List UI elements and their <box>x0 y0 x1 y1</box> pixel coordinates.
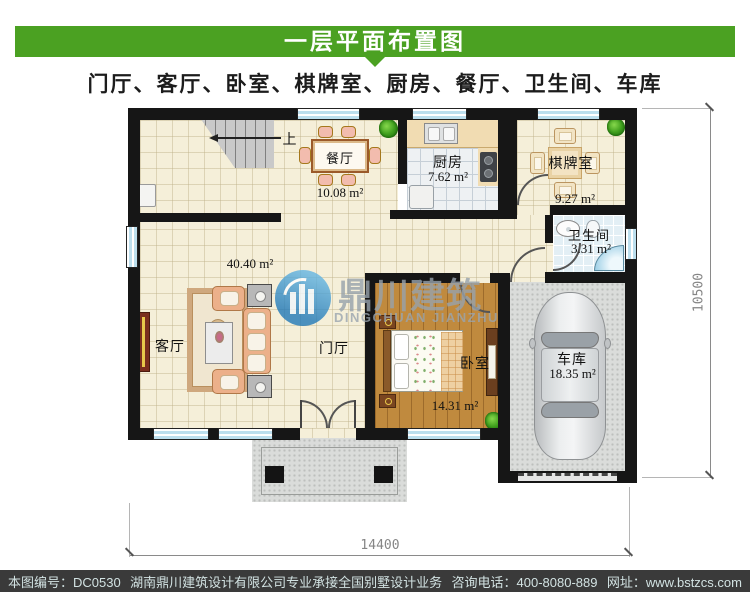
sofa-cushion <box>247 333 266 351</box>
window <box>218 428 273 440</box>
chess-area-value: 9.27 m² <box>545 191 605 207</box>
wall-kitchen-left <box>398 120 407 184</box>
footer-phone: 咨询电话：400-8080-889 <box>452 572 598 591</box>
window <box>153 428 209 440</box>
armchair-cushion <box>220 291 239 306</box>
dim-line-vertical <box>710 109 711 478</box>
wall-bath-bottom <box>545 272 637 283</box>
armchair <box>212 286 245 311</box>
kitchen-area-value: 7.62 m² <box>413 169 483 185</box>
logo-building-bar <box>299 284 305 314</box>
dim-extension-line <box>629 487 630 557</box>
chair-icon <box>299 147 311 164</box>
chair-icon <box>341 126 356 138</box>
dim-width-value: 14400 <box>330 538 430 553</box>
car-rear-window <box>541 402 599 418</box>
lamp-icon <box>255 291 266 302</box>
cabinet-icon <box>138 184 156 207</box>
bed <box>391 330 463 392</box>
stair-arrow-icon <box>209 134 218 142</box>
chair-icon <box>369 147 381 164</box>
dim-extension-line <box>129 503 130 557</box>
burner <box>484 156 493 165</box>
tv-screen-line <box>142 317 145 367</box>
plant-icon <box>607 118 625 136</box>
armchair-cushion <box>220 375 239 390</box>
watermark-en: DINGCHUAN JIANZHU <box>334 310 499 325</box>
wall-bath-left <box>545 215 553 243</box>
dingchuan-logo-icon <box>275 270 331 326</box>
dim-height-value: 10500 <box>692 263 707 323</box>
floor-plan-page: 一层平面布置图 门厅、客厅、卧室、棋牌室、厨房、餐厅、卫生间、车库 <box>0 0 750 592</box>
living-room-label: 客厅 <box>148 336 192 356</box>
fridge-icon <box>409 185 434 209</box>
sink-basin <box>428 127 440 141</box>
pillow <box>394 334 409 360</box>
footer-company: 湖南鼎川建筑设计有限公司专业承接全国别墅设计业务 <box>130 572 442 591</box>
armchair <box>212 369 245 394</box>
garage-area-value: 18.35 m² <box>535 366 610 382</box>
end-table <box>247 284 272 307</box>
wall-dining-living <box>140 213 281 222</box>
pillow <box>394 363 409 389</box>
car-windshield <box>541 332 599 348</box>
living-area-value: 40.40 m² <box>215 256 285 272</box>
banner-pointer-icon <box>365 57 385 67</box>
bed-headboard <box>383 330 391 392</box>
dining-area-value: 10.08 m² <box>305 185 375 201</box>
entry-door-frame <box>290 428 300 440</box>
bedroom-area-value: 14.31 m² <box>420 398 490 414</box>
dim-extension-line <box>642 477 712 478</box>
porch-column <box>374 466 393 483</box>
logo-building-bar <box>308 289 314 314</box>
table-flowers <box>215 331 224 343</box>
window <box>407 428 481 440</box>
window <box>625 228 637 260</box>
coffee-table <box>205 322 233 364</box>
sink-basin <box>443 127 455 141</box>
garage-door-dashed <box>518 473 617 481</box>
wall-kitchen-bottom <box>390 210 508 219</box>
footer-bar: 本图编号：DC0530 湖南鼎川建筑设计有限公司专业承接全国别墅设计业务 咨询电… <box>0 570 750 592</box>
bathroom-area-value: 3.31 m² <box>562 241 620 257</box>
kitchen-sink-icon <box>424 123 458 144</box>
stair-direction-line <box>217 137 281 139</box>
end-table <box>247 375 272 398</box>
nightstand <box>379 394 396 408</box>
window <box>126 226 138 268</box>
chair-icon <box>318 126 333 138</box>
wall-left <box>128 108 140 440</box>
window <box>412 108 467 120</box>
burner <box>484 169 493 178</box>
sofa <box>243 308 271 374</box>
bed-blanket <box>411 332 441 391</box>
bedroom-label: 卧室 <box>455 353 495 373</box>
car-mirror <box>529 338 536 349</box>
wall-kitchen-chess <box>498 120 517 219</box>
sofa-cushion <box>247 312 266 330</box>
car-mirror <box>604 338 611 349</box>
porch-column <box>265 466 284 483</box>
footer-website: 网址：www.bstzcs.com <box>607 572 742 591</box>
room-list-subtitle: 门厅、客厅、卧室、棋牌室、厨房、餐厅、卫生间、车库 <box>0 68 750 98</box>
plant-icon <box>379 119 398 138</box>
window <box>297 108 360 120</box>
logo-building-bar <box>290 292 296 314</box>
chair-cushion <box>559 132 572 141</box>
window <box>537 108 600 120</box>
dim-line-horizontal <box>130 555 630 556</box>
entry-door-leaf <box>300 400 302 428</box>
entry-door-frame <box>356 428 366 440</box>
chess-room-label: 棋牌室 <box>535 153 607 173</box>
wall-garage-left <box>498 282 510 483</box>
sofa-cushion <box>247 354 266 372</box>
entry-door-leaf <box>354 400 356 428</box>
wall-porch-stub <box>378 430 407 440</box>
footer-drawing-no: 本图编号：DC0530 <box>8 572 121 591</box>
chair-icon <box>554 128 576 144</box>
foyer-label: 门厅 <box>312 338 356 358</box>
wall-right <box>625 108 637 483</box>
nightstand-lamp <box>385 398 392 405</box>
lamp-icon <box>255 382 266 393</box>
dim-extension-line <box>642 108 712 109</box>
dining-label: 餐厅 <box>313 148 367 167</box>
page-title: 一层平面布置图 <box>15 26 735 57</box>
wall-bedroom-top-stub <box>490 273 510 283</box>
stair-up-label: 上 <box>282 129 298 149</box>
